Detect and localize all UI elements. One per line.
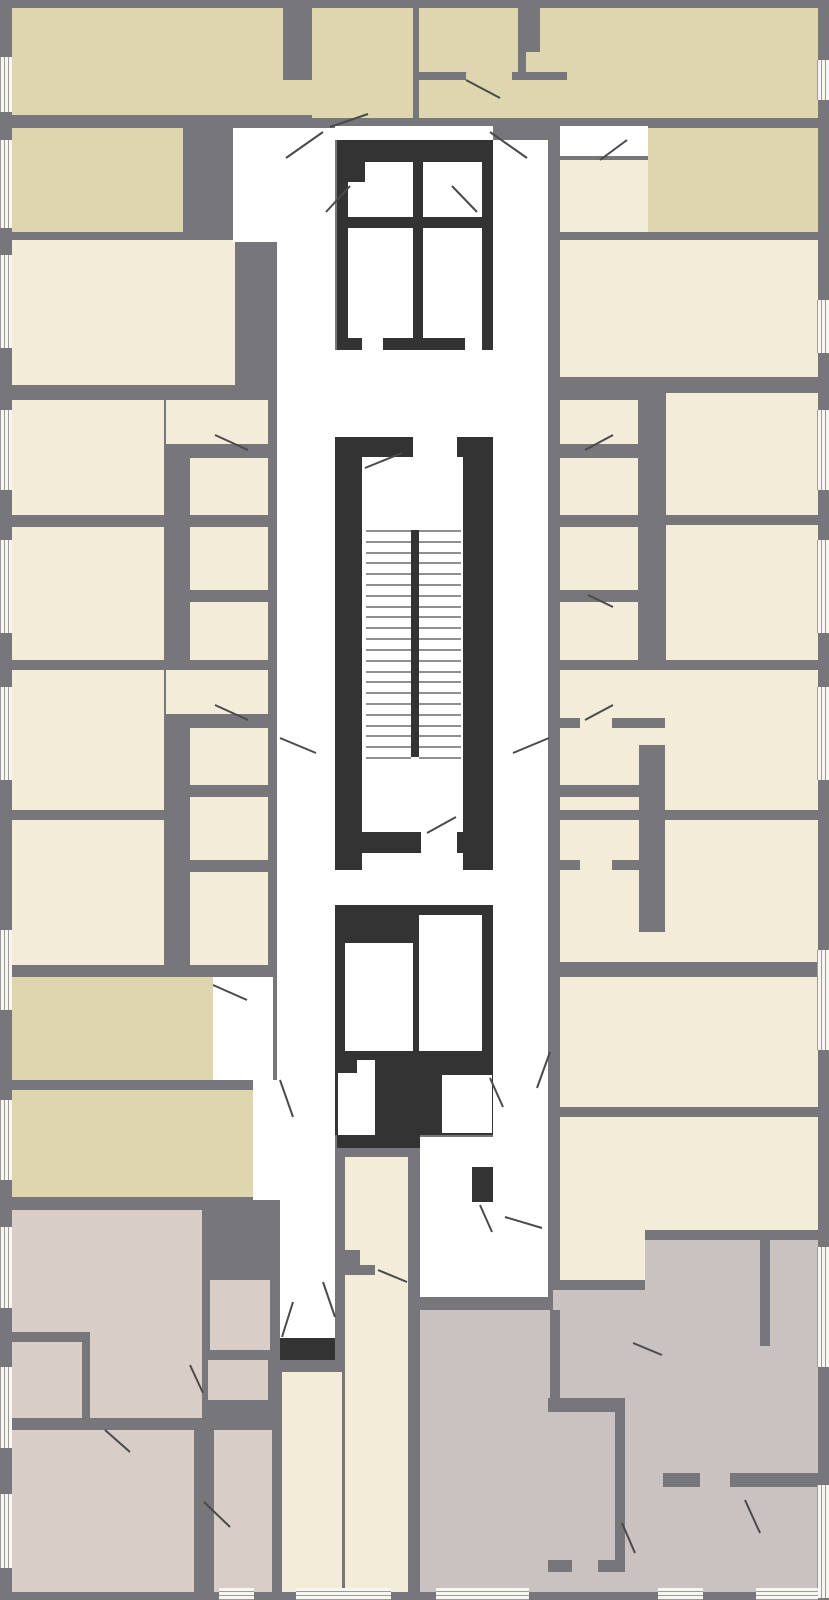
stair-tread — [419, 616, 461, 618]
room-gray-upper — [645, 1240, 818, 1310]
stair-tread — [366, 627, 411, 629]
stair-tread — [419, 606, 461, 608]
wall-gray-3 — [730, 1473, 818, 1487]
hall-cream-left-2c — [190, 872, 268, 965]
stair-tread — [366, 649, 411, 651]
stair-tread — [419, 746, 461, 748]
wall-hall-l1a — [164, 448, 212, 458]
hall-cream-right-1c — [560, 602, 638, 660]
pier-right-2 — [639, 745, 665, 932]
wall-pink-8 — [227, 1400, 268, 1422]
room-tan-right-upper — [648, 128, 818, 232]
window-right-4 — [817, 687, 829, 780]
stair-tread — [419, 671, 461, 673]
wall-gray-6 — [615, 1412, 625, 1560]
window-right-5 — [817, 950, 829, 1050]
room-tan-left-upper — [12, 128, 183, 232]
wall-hall-l1e — [247, 590, 268, 600]
stair-tread — [419, 562, 461, 564]
stair-tread — [419, 660, 461, 662]
wall-core-band — [337, 1148, 420, 1157]
room-cream-left-3b — [12, 820, 164, 965]
stair-tread — [419, 735, 461, 737]
stair-tread — [419, 714, 461, 716]
stair-tread — [366, 714, 411, 716]
stair-tread — [419, 725, 461, 727]
window-bottom-0 — [219, 1588, 254, 1600]
room-cream-left-1 — [12, 240, 235, 385]
wall-gray-1 — [760, 1240, 770, 1346]
window-right-3 — [817, 540, 829, 633]
wall-pink-7 — [202, 1350, 268, 1360]
room-pink-mid — [90, 1332, 202, 1418]
wall-gray-8 — [598, 1560, 625, 1572]
room-cream-right-1 — [560, 240, 818, 377]
wall-pink-9 — [203, 1280, 210, 1350]
window-bottom-4 — [756, 1588, 818, 1600]
hall-cream-left-1b — [190, 527, 268, 590]
window-right-1 — [817, 300, 829, 353]
room-cream-left-3c — [166, 670, 268, 714]
window-left-6 — [0, 930, 12, 1010]
window-left-3 — [0, 410, 12, 490]
core-block-pocket — [280, 1338, 335, 1360]
corridor-core-mid — [335, 350, 493, 437]
stair-tread — [419, 692, 461, 694]
window-right-0 — [817, 60, 829, 100]
window-left-10 — [0, 1494, 12, 1568]
room-cream-stair-strip — [345, 1157, 408, 1592]
stair-tread — [419, 703, 461, 705]
room-cream-left-2b — [166, 400, 268, 444]
stair-tread — [366, 725, 411, 727]
pier-left-2 — [164, 745, 190, 932]
room-pink-bath-b — [208, 1360, 268, 1400]
stair-tread — [366, 671, 411, 673]
room-tan-top-left — [12, 8, 283, 115]
core-pocket-b — [357, 1060, 375, 1073]
hall-cream-right-1a — [560, 458, 638, 515]
stair-tread — [366, 584, 411, 586]
room-tan-top-left-ext — [283, 80, 312, 115]
stair-tread — [366, 638, 411, 640]
window-left-0 — [0, 57, 12, 112]
corridor-right-vestibule — [420, 1137, 548, 1297]
elevator-door-right — [465, 338, 482, 350]
stair-tread — [366, 595, 411, 597]
wall-hall-r2d — [560, 860, 580, 870]
corridor-right-top — [560, 126, 648, 156]
stair-tread — [366, 552, 411, 554]
window-left-1 — [0, 140, 12, 228]
wall-top-chunk-b — [518, 8, 540, 52]
shaft-lower-right — [419, 915, 482, 1051]
wall-hall-r2b — [612, 718, 665, 728]
corridor-core-top — [335, 126, 493, 140]
wall-hall-l1b — [246, 448, 268, 458]
room-cream-right-2c — [666, 525, 818, 660]
wall-pink-2 — [82, 1342, 90, 1418]
stair-tread — [419, 552, 461, 554]
room-pink-bottom-a — [12, 1430, 194, 1592]
room-pink-small-left — [12, 1342, 82, 1418]
window-bottom-1 — [296, 1588, 391, 1600]
room-cream-left-3a — [12, 670, 164, 810]
stair-tread — [366, 660, 411, 662]
wall-pink-1 — [12, 1332, 90, 1342]
window-right-7 — [817, 1485, 829, 1598]
core-block-low-right — [472, 1167, 493, 1202]
shaft-lower-left — [345, 943, 413, 1051]
wall-gray-2 — [663, 1473, 700, 1487]
room-cream-right-6 — [560, 1117, 818, 1230]
stair-tread — [366, 703, 411, 705]
stair-tread — [366, 606, 411, 608]
corridor-left-lower — [277, 977, 335, 1200]
wall-top-b — [512, 72, 567, 80]
wall-hall-l2a — [164, 718, 212, 728]
stair-tread — [419, 584, 461, 586]
window-right-2 — [817, 410, 829, 490]
stair-tread — [366, 746, 411, 748]
hall-cream-left-1a — [190, 458, 268, 515]
wall-top-a — [419, 72, 466, 80]
window-left-2 — [0, 255, 12, 348]
wall-pink-3 — [30, 1418, 100, 1430]
window-left-5 — [0, 687, 12, 780]
corridor-left-leg — [277, 242, 335, 977]
corridor-left-pocket — [280, 1200, 335, 1338]
room-cream-right-2b — [560, 400, 638, 444]
stair-tread — [419, 649, 461, 651]
stair-tread — [419, 627, 461, 629]
wall-hall-l2b — [246, 718, 268, 728]
stair-tread — [366, 757, 411, 759]
window-left-8 — [0, 1227, 12, 1308]
pier-right-1 — [639, 475, 665, 662]
stair-tread — [366, 616, 411, 618]
room-cream-stair-strip-ext — [282, 1372, 342, 1592]
stair-tread — [366, 692, 411, 694]
room-pink-bath-a — [210, 1280, 270, 1350]
corridor-right-leg — [493, 140, 548, 1152]
hall-cream-left-1c — [190, 602, 268, 660]
room-tan-left-lower-b — [12, 1090, 253, 1197]
room-cream-right-vestibule — [560, 160, 648, 232]
stair-tread — [419, 573, 461, 575]
room-cream-right-4 — [560, 820, 818, 962]
window-right-6 — [817, 1247, 829, 1367]
wall-hall-r1a — [560, 448, 580, 458]
stair-tread — [419, 681, 461, 683]
stair-tread — [366, 541, 411, 543]
room-tan-top-center — [312, 8, 413, 118]
stair-tread — [419, 595, 461, 597]
room-cream-right-pocket — [560, 1230, 645, 1280]
wall-hall-r1d — [560, 590, 580, 600]
room-tan-left-lower-a — [12, 977, 213, 1080]
wall-hall-l2e — [247, 860, 268, 870]
wall-cream-strip-b — [340, 1265, 375, 1275]
room-pink-living — [12, 1210, 202, 1332]
wall-gray-4 — [550, 1310, 560, 1398]
elevator-door-left — [362, 338, 383, 350]
stair-tread — [419, 757, 461, 759]
wall-hall-r2a — [560, 718, 580, 728]
stair-tread — [366, 735, 411, 737]
corridor-core-low — [335, 870, 493, 905]
stair-tread — [366, 681, 411, 683]
stair-tread — [366, 562, 411, 564]
wall-hall-r1b — [612, 448, 665, 458]
wall-gray-7 — [548, 1560, 572, 1572]
window-left-7 — [0, 1100, 12, 1180]
wall-gray-5 — [548, 1398, 625, 1412]
hall-cream-left-2b — [190, 797, 268, 860]
elevator-cab-left — [348, 228, 413, 338]
stair-tread — [419, 638, 461, 640]
stair-tread — [419, 530, 461, 532]
stair-tread — [366, 573, 411, 575]
stair-lower-landing — [362, 853, 463, 870]
room-cream-right-2a — [666, 393, 818, 515]
hall-cream-right-1b — [560, 527, 638, 590]
window-bottom-2 — [436, 1588, 529, 1600]
corridor-top-left — [233, 128, 335, 242]
core-room-low — [442, 1075, 492, 1133]
window-bottom-3 — [658, 1588, 703, 1600]
wall-pink-6 — [203, 1272, 270, 1280]
window-left-4 — [0, 540, 12, 633]
stair-stringer — [411, 530, 419, 757]
core-pocket-a — [338, 1073, 375, 1135]
core-block-notch — [337, 162, 365, 182]
pier-left-1 — [164, 475, 190, 662]
corridor-left-entry — [213, 977, 273, 1080]
stair-tread — [366, 530, 411, 532]
window-left-9 — [0, 1367, 12, 1448]
corridor-left-strip — [253, 1080, 277, 1200]
stair-door-top-gap — [413, 437, 457, 457]
room-gray-neck — [553, 1290, 645, 1310]
elevator-lobby-right — [423, 162, 482, 217]
core-lower-band — [337, 1135, 420, 1148]
wall-pink-5 — [204, 1430, 214, 1550]
room-cream-left-2c — [12, 527, 164, 660]
wall-top-chunk-a — [283, 8, 312, 80]
room-cream-left-2a — [12, 400, 164, 515]
hall-cream-left-2a — [190, 728, 268, 785]
floor-plan-canvas — [0, 0, 829, 1600]
elevator-cab-right — [423, 228, 482, 338]
stair-tread — [419, 541, 461, 543]
stair-door-bottom-gap — [421, 832, 457, 853]
room-tan-top-right — [419, 8, 818, 118]
room-pink-bottom-b — [214, 1430, 272, 1592]
room-cream-right-5 — [560, 977, 818, 1107]
